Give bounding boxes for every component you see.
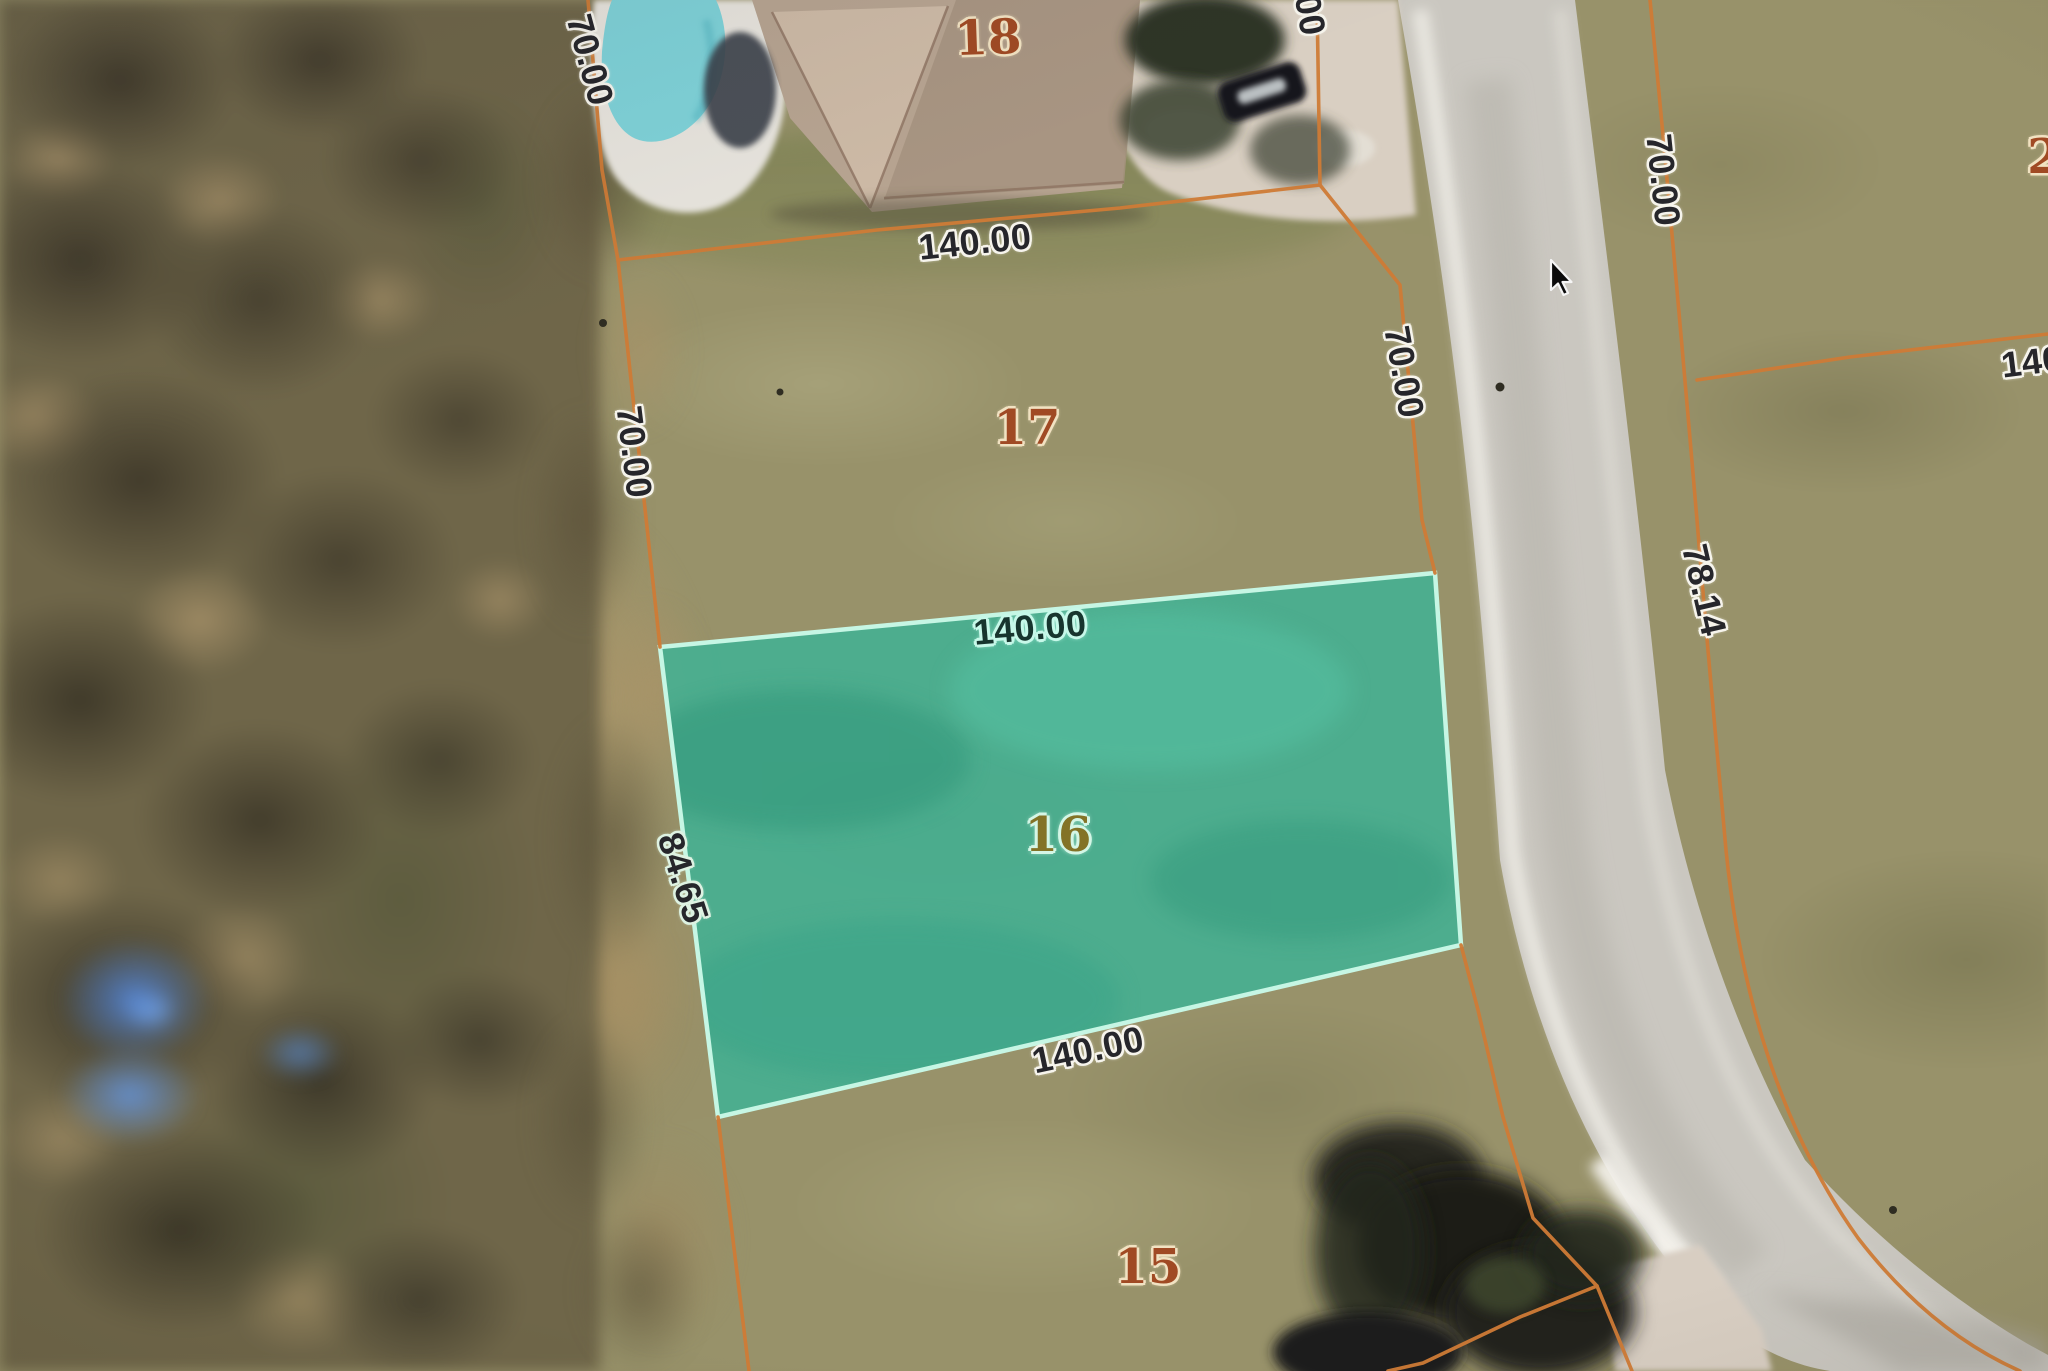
lot-number-17: 17 — [994, 400, 1061, 456]
scene-graphics — [0, 0, 2048, 1371]
dimension-label-right-partial: 140 — [1999, 337, 2048, 386]
tree-shadow — [704, 32, 776, 148]
lot-number-16: 16 — [1025, 807, 1092, 863]
lot-number-15: 15 — [1115, 1239, 1182, 1295]
tree-cluster-bottom — [1273, 1123, 1642, 1371]
house-roof-lot18 — [752, 0, 1150, 230]
aerial-map-viewport[interactable]: 70.00 00 140.00 70.00 70.00 70.00 140.00… — [0, 0, 2048, 1371]
mouse-cursor-icon — [1549, 259, 1575, 299]
lot-number-18: 18 — [954, 9, 1023, 67]
road — [1398, 0, 2048, 1371]
lot-number-2-partial: 2 — [2027, 129, 2048, 185]
